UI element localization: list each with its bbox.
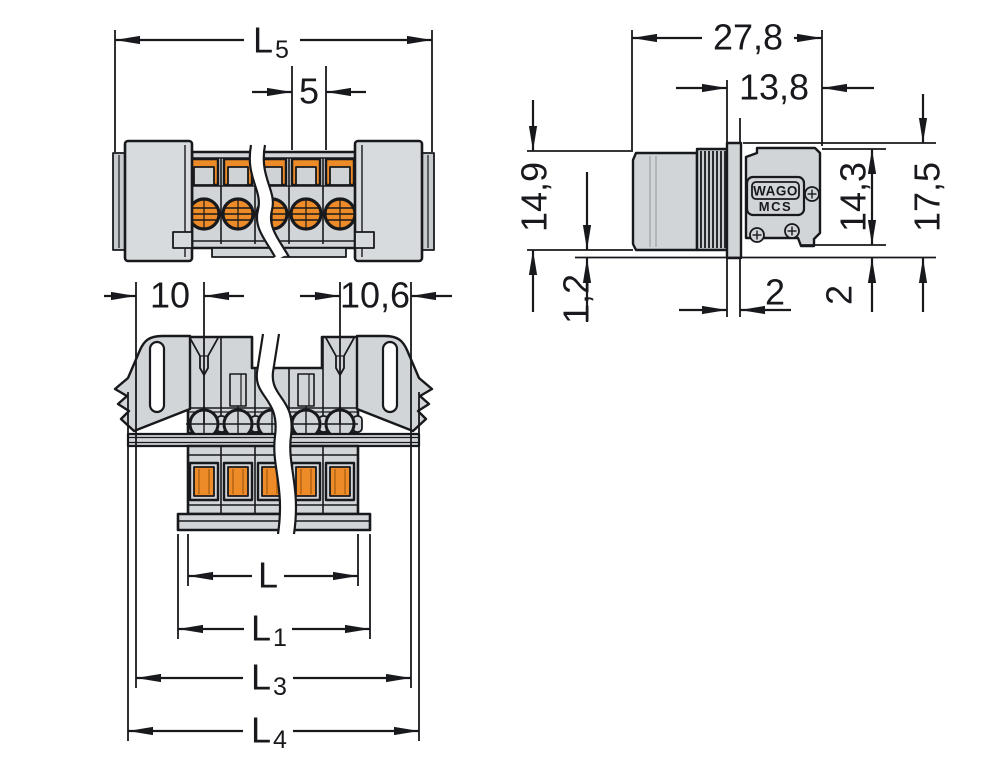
dim-label-l: L — [258, 555, 278, 596]
locking-lever-right — [357, 336, 432, 431]
dim-l5: L 5 — [115, 20, 432, 153]
dim-label-14-3: 14,3 — [833, 162, 874, 232]
technical-drawing: L 5 5 — [0, 0, 1002, 765]
screw-icon — [785, 224, 799, 238]
dim-label-14-9: 14,9 — [514, 162, 555, 232]
connector-body-lip — [178, 514, 370, 530]
dim-1-2: 1,2 — [556, 172, 597, 324]
wire-port — [224, 463, 252, 500]
dim-pitch-5: 5 — [252, 66, 366, 150]
plug-view: 10 10,6 L L 1 L 3 — [104, 275, 452, 755]
dim-label-l4-sub: 4 — [273, 726, 287, 754]
dim-label-10-6: 10,6 — [340, 275, 410, 316]
dim-2-panel: 2 — [679, 272, 791, 313]
dim-label-17-5: 17,5 — [907, 162, 948, 232]
dim-label-l3-sub: 3 — [273, 673, 287, 701]
locking-lever — [115, 336, 190, 431]
screw-icon — [805, 187, 819, 201]
dim-label-l4: L — [251, 710, 271, 751]
dim-14-3: 14,3 — [833, 149, 874, 245]
dim-13-8: 13,8 — [676, 67, 874, 108]
strain-relief-ridges — [697, 149, 727, 250]
dim-label-pitch: 5 — [299, 71, 319, 112]
technical-drawing-page: L 5 5 — [0, 0, 1002, 765]
dim-17-5: 17,5 — [907, 94, 948, 312]
dim-label-10: 10 — [150, 275, 190, 316]
wire-port — [190, 463, 218, 500]
end-flange-right — [355, 141, 434, 261]
dim-label-l1-sub: 1 — [273, 624, 287, 652]
wago-logo: WAGO — [753, 184, 798, 199]
mounting-flange-side — [727, 143, 741, 258]
plug-housing-side — [633, 153, 697, 250]
dim-label-l1: L — [251, 608, 271, 649]
dim-14-9: 14,9 — [514, 100, 555, 312]
dim-l3: L 3 — [136, 657, 411, 702]
dim-label-2-edge: 2 — [819, 285, 860, 305]
front-view: L 5 5 — [113, 20, 434, 262]
dim-label-2-panel: 2 — [765, 272, 785, 313]
dim-label-l5: L — [253, 20, 273, 61]
dim-label-l5-sub: 5 — [275, 36, 289, 64]
screw-icon — [750, 228, 764, 242]
dim-label-1-2: 1,2 — [556, 274, 597, 324]
dim-l: L — [188, 534, 358, 596]
side-view: WAGO MCS 27,8 — [514, 17, 948, 325]
dim-label-27-8: 27,8 — [713, 17, 783, 58]
mcs-series-label: MCS — [759, 199, 792, 214]
wire-port — [326, 463, 354, 500]
dim-label-13-8: 13,8 — [739, 67, 809, 108]
end-flange — [113, 141, 192, 261]
dim-label-l3: L — [251, 657, 271, 698]
wire-ports — [190, 463, 354, 500]
dim-2-edge: 2 — [819, 258, 873, 312]
